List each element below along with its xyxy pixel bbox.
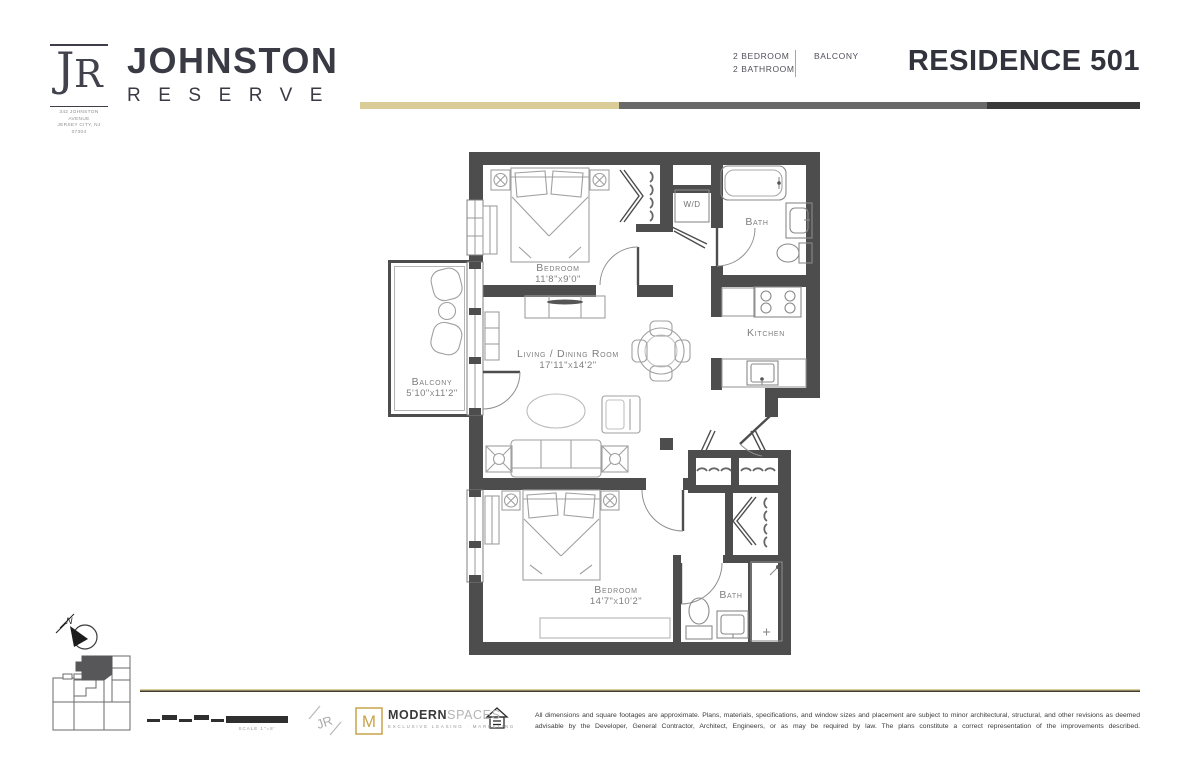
room-dims: 17'11"x14'2"	[517, 360, 619, 371]
shower-icon	[751, 562, 782, 641]
jr-mark-letters: JR	[315, 713, 335, 732]
compass-n-label: N	[66, 616, 73, 626]
ms-monogram-letter: M	[362, 712, 376, 731]
bath2-vanity-icon	[717, 611, 748, 638]
bath1-label: Bath	[745, 216, 768, 228]
room-name: W/D	[683, 200, 700, 209]
bedroom2-label: Bedroom 14'7"x10'2"	[590, 584, 642, 607]
brokerage-logo: MODERNSPACES EXCLUSIVE LEASING · MARKETI…	[388, 708, 515, 729]
balcony-label: Balcony 5'10"x11'2"	[406, 376, 458, 399]
jr-footer-mark: JR	[309, 706, 341, 735]
north-arrow: N	[56, 614, 97, 649]
room-name: Bath	[745, 216, 768, 228]
footer-accent-line	[140, 689, 1140, 692]
stove-icon	[754, 287, 801, 317]
living-room-label: Living / Dining Room 17'11"x14'2"	[517, 348, 619, 371]
kitchen-sink-icon	[747, 361, 778, 385]
room-name: Bedroom	[590, 584, 642, 596]
bed2-dresser	[485, 496, 499, 544]
room-dims: 14'7"x10'2"	[590, 596, 642, 607]
room-dims: 5'10"x11'2"	[406, 388, 458, 399]
bed2-icon	[523, 490, 600, 580]
rug-icon	[527, 394, 585, 428]
living-window-wall	[467, 262, 483, 415]
bathtub-icon	[721, 166, 786, 200]
window-seat	[540, 618, 670, 638]
brokerage-name: MODERNSPACES	[388, 708, 515, 722]
bedroom2-window	[467, 490, 483, 582]
brokerage-tagline: EXCLUSIVE LEASING · MARKETING	[388, 724, 515, 729]
bed1-icon	[511, 168, 589, 262]
key-plan	[53, 656, 130, 730]
media-console-icon	[525, 296, 605, 318]
furniture	[429, 166, 812, 641]
modern-spaces-monogram: M	[356, 708, 382, 734]
room-name: Bath	[719, 589, 742, 601]
floor-plan-graphic: N SCALE 1"=8'	[0, 0, 1190, 768]
bed1-nightstands	[491, 170, 609, 190]
living-console	[485, 312, 499, 360]
bed1-dresser	[483, 206, 497, 254]
brokerage-name-light: SPACES	[447, 708, 500, 722]
room-dims: 11'8"x9'0"	[535, 274, 581, 285]
bed2-nightstands	[502, 491, 619, 510]
scale-bar: SCALE 1"=8'	[147, 715, 288, 731]
bedroom1-window	[467, 200, 483, 255]
wd-door	[672, 227, 707, 248]
room-name: Bedroom	[535, 262, 581, 274]
disclaimer-text: All dimensions and square footages are a…	[535, 711, 1140, 733]
sofa-icon	[511, 440, 601, 477]
key-plan-unit-highlight	[82, 656, 112, 680]
bedroom1-label: Bedroom 11'8"x9'0"	[535, 262, 581, 285]
room-name: Living / Dining Room	[517, 348, 619, 360]
bath2-label: Bath	[719, 589, 742, 601]
armchair-icon	[602, 396, 640, 433]
dining-table-icon	[632, 321, 690, 381]
kitchen-label: Kitchen	[747, 327, 785, 339]
scale-label: SCALE 1"=8'	[238, 726, 275, 731]
floorplan-sheet: J R 342 JOHNSTON AVENUE JERSEY CITY, NJ …	[0, 0, 1190, 768]
bath2-toilet-icon	[686, 598, 712, 639]
washer-dryer-label: W/D	[683, 200, 700, 209]
brokerage-name-bold: MODERN	[388, 708, 447, 722]
room-name: Kitchen	[747, 327, 785, 339]
room-name: Balcony	[406, 376, 458, 388]
